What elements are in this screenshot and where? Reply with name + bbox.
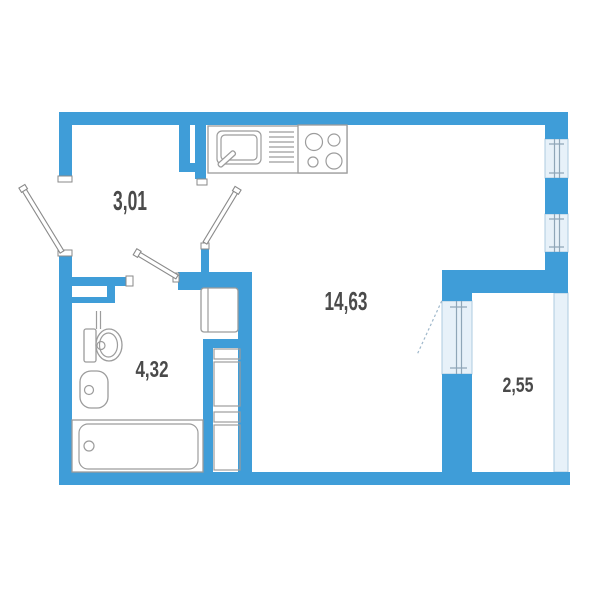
bathroom-area-label: 4,32 [136,356,169,382]
jamb-bath-left [126,276,133,286]
wall-bath-bar2 [72,297,115,303]
living-area-label: 14,63 [325,286,368,316]
wall-right-lower [545,252,568,293]
wall-bath-join [107,286,115,297]
wall-balcony-top [442,270,545,293]
wall-kitchen-join [179,163,206,172]
drainer-lines-icon [269,132,294,162]
appliance-2-top [214,412,240,422]
appliance-1-body [214,362,240,406]
toilet-tank-icon [84,329,96,362]
floor-plan-svg: 3,01 14,63 4,32 2,55 [0,0,600,600]
balcony-door-swing-line [418,301,442,353]
pipe-lines-icon [97,311,101,329]
wall-top [60,112,568,125]
wall-right-upper [545,112,568,139]
wall-bottom [59,472,570,485]
hallway-area-label: 3,01 [113,185,147,216]
wall-balcony-partition-lower [442,374,472,472]
wall-left-lower [59,256,72,485]
appliance-1-top [214,349,240,359]
bathroom-fixtures [72,311,203,472]
wall-room-bath [178,272,252,290]
jamb-kitchen [197,179,207,185]
wall-niche-top [203,339,242,348]
jamb-entry-upper [58,176,72,182]
balcony-outer-glazing [554,293,568,472]
appliance-2-body [214,425,240,470]
wall-right-mid [545,178,568,214]
entrance-door-leaf [19,184,65,253]
wall-balcony-partition-upper [442,293,472,301]
hall-room-door-leaf [202,186,241,244]
wall-niche-left [203,339,213,472]
floor-plan: 3,01 14,63 4,32 2,55 [0,0,600,600]
kitchen [208,125,347,173]
bathroom-door-leaf [133,249,179,280]
wall-bath-bar1 [72,277,128,286]
window-right-lower [545,214,568,252]
wall-left-upper [59,112,72,176]
balcony-area-label: 2,55 [503,374,534,397]
jamb-hall-door [201,243,209,249]
fridge-icon [201,288,238,332]
window-right-upper [545,139,568,178]
bathtub-icon [72,420,203,472]
